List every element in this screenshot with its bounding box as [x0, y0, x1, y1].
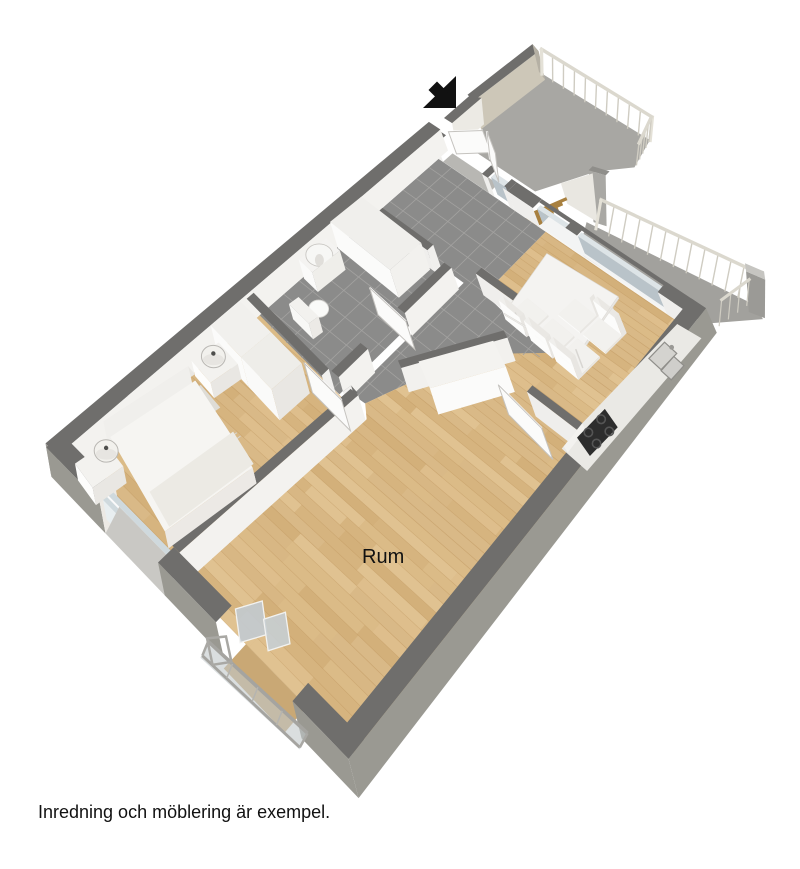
svg-text:Inredning och möblering är exe: Inredning och möblering är exempel. — [38, 802, 330, 822]
svg-text:Rum: Rum — [362, 546, 404, 568]
